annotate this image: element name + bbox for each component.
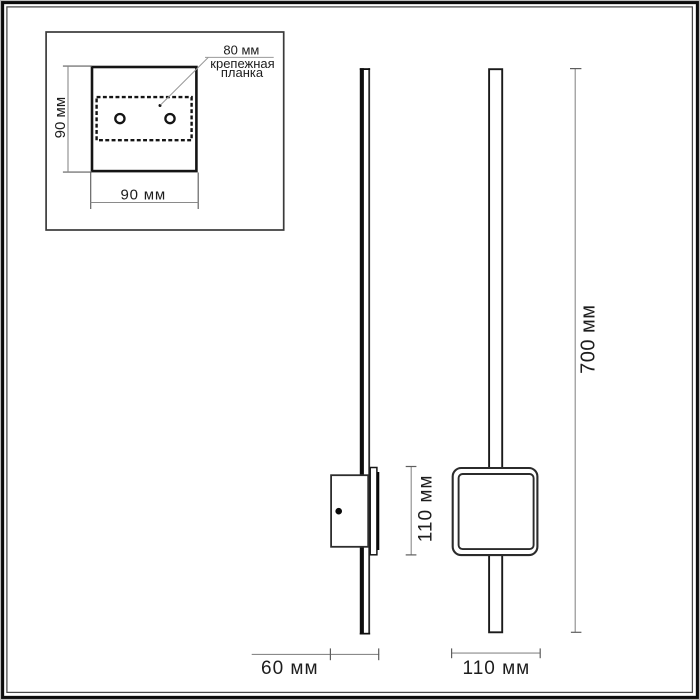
svg-text:110 мм: 110 мм [416,475,437,543]
svg-text:60 мм: 60 мм [261,658,319,679]
svg-text:110 мм: 110 мм [463,658,531,679]
svg-text:700 мм: 700 мм [577,304,599,373]
svg-text:90 мм: 90 мм [120,186,165,203]
svg-text:90 мм: 90 мм [52,97,69,138]
svg-text:планка: планка [221,65,264,80]
